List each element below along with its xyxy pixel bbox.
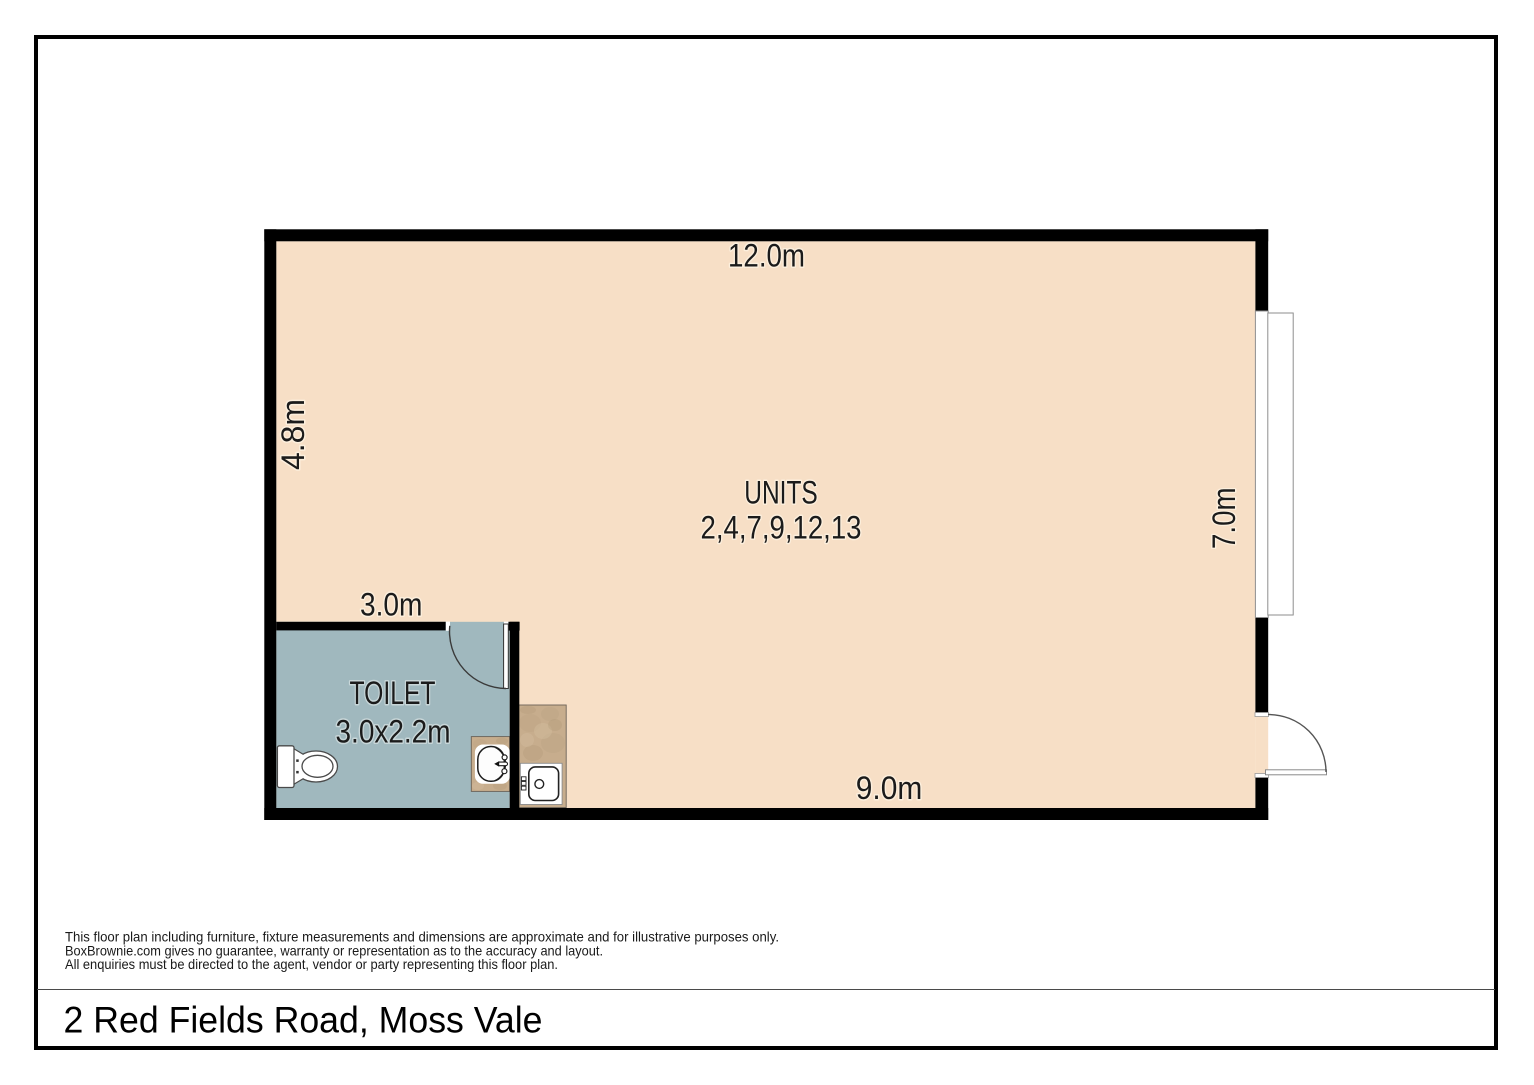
svg-text:2 Red Fields Road, Moss Vale: 2 Red Fields Road, Moss Vale xyxy=(64,999,543,1040)
svg-text:TOILET: TOILET xyxy=(350,675,436,711)
svg-text:3.0x2.2m: 3.0x2.2m xyxy=(336,714,451,750)
svg-text:12.0m: 12.0m xyxy=(728,238,805,274)
svg-text:3.0m: 3.0m xyxy=(360,587,423,623)
svg-text:4.8m: 4.8m xyxy=(275,399,311,470)
svg-text:UNITS: UNITS xyxy=(744,475,818,511)
svg-text:This floor plan including furn: This floor plan including furniture, fix… xyxy=(65,930,779,945)
svg-text:2,4,7,9,12,13: 2,4,7,9,12,13 xyxy=(701,510,862,546)
svg-text:9.0m: 9.0m xyxy=(856,770,923,806)
svg-text:All enquiries must be directed: All enquiries must be directed to the ag… xyxy=(65,957,558,972)
svg-text:7.0m: 7.0m xyxy=(1206,487,1242,549)
